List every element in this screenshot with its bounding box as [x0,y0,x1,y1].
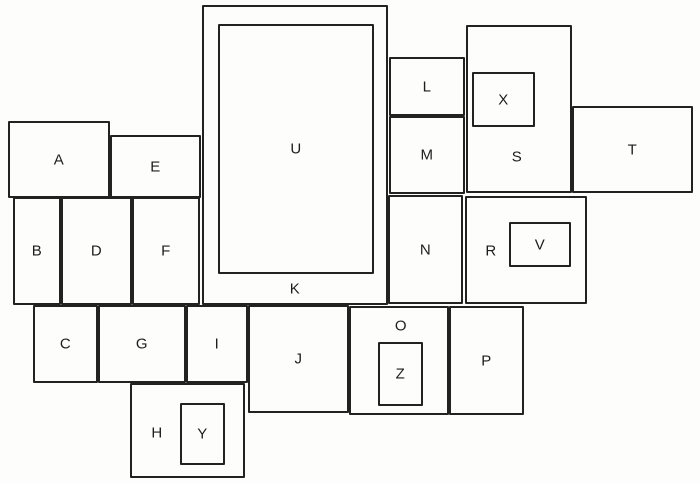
rect-label-H: H [151,426,162,441]
rect-label-I: I [215,337,220,352]
rect-label-R: R [485,244,496,259]
rect-label-D: D [91,244,102,259]
rect-label-X: X [498,92,509,107]
rect-label-G: G [136,337,148,352]
rect-label-U: U [290,142,301,157]
rect-label-J: J [295,352,303,367]
rect-label-B: B [32,244,43,259]
rect-label-T: T [628,142,638,157]
rect-label-O: O [395,319,407,334]
rect-label-S: S [512,150,523,165]
rect-label-L: L [423,79,432,94]
rect-label-E: E [150,159,161,174]
diagram-canvas: AEKULMSXTBDFNRVCGIJOZPHY [0,0,700,484]
rect-label-M: M [421,148,434,163]
rect-label-C: C [60,337,71,352]
rect-label-A: A [54,152,65,167]
rect-label-Z: Z [396,367,406,382]
rect-label-V: V [535,237,546,252]
rect-label-P: P [481,353,492,368]
rect-label-Y: Y [197,427,208,442]
rect-label-K: K [290,282,301,297]
rect-label-N: N [420,242,431,257]
rect-label-F: F [161,244,171,259]
